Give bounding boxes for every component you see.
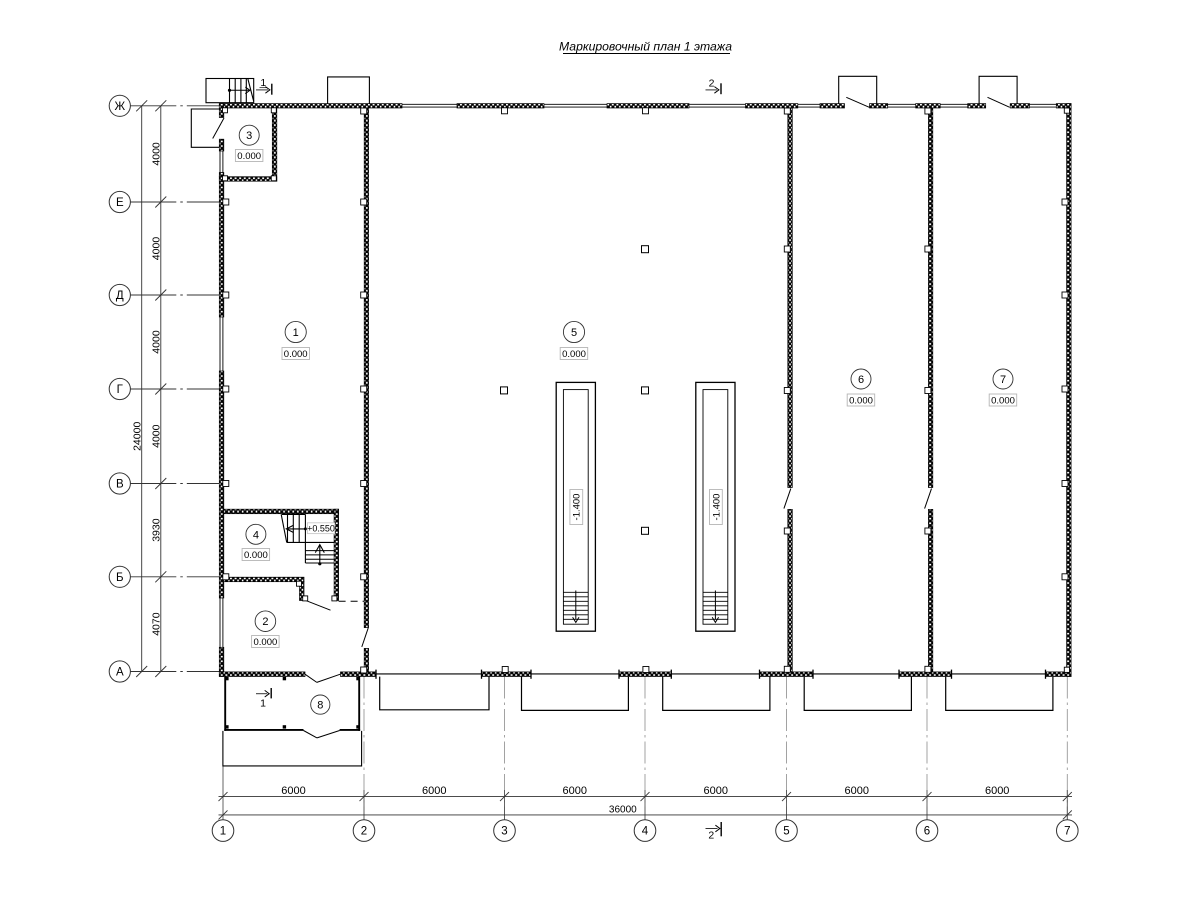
svg-text:Д: Д	[116, 290, 124, 302]
svg-text:1: 1	[220, 826, 226, 838]
svg-text:4000: 4000	[151, 237, 163, 261]
svg-text:Г: Г	[117, 384, 124, 396]
svg-text:6000: 6000	[563, 785, 587, 797]
svg-text:4: 4	[253, 529, 259, 541]
svg-text:36000: 36000	[609, 804, 637, 815]
svg-text:В: В	[116, 479, 124, 491]
svg-text:4070: 4070	[151, 612, 163, 636]
svg-text:4000: 4000	[151, 142, 163, 166]
svg-text:6000: 6000	[845, 785, 869, 797]
svg-text:5: 5	[783, 826, 789, 838]
svg-text:2: 2	[262, 616, 268, 628]
svg-text:А: А	[116, 667, 124, 679]
svg-text:1: 1	[293, 327, 299, 339]
svg-text:0.000: 0.000	[244, 550, 268, 561]
svg-text:7: 7	[1064, 826, 1070, 838]
svg-text:+0.550: +0.550	[307, 523, 335, 533]
svg-text:6000: 6000	[422, 785, 446, 797]
svg-text:2: 2	[708, 830, 714, 842]
svg-text:0.000: 0.000	[562, 349, 586, 360]
svg-text:-1.400: -1.400	[711, 494, 722, 521]
svg-text:3: 3	[246, 130, 252, 142]
svg-text:4000: 4000	[151, 330, 163, 354]
svg-text:4000: 4000	[151, 424, 163, 448]
svg-text:6000: 6000	[985, 785, 1009, 797]
svg-text:0.000: 0.000	[849, 396, 873, 407]
svg-text:6: 6	[858, 374, 864, 386]
svg-text:Е: Е	[116, 197, 124, 209]
svg-text:5: 5	[571, 327, 577, 339]
svg-text:Маркировочный план 1 этажа: Маркировочный план 1 этажа	[559, 40, 732, 54]
svg-text:4: 4	[642, 826, 649, 838]
svg-text:1: 1	[260, 697, 266, 709]
svg-text:Ж: Ж	[114, 101, 125, 113]
svg-text:2: 2	[361, 826, 367, 838]
svg-text:6000: 6000	[281, 785, 305, 797]
svg-text:Б: Б	[116, 572, 124, 584]
svg-text:-1.400: -1.400	[572, 494, 583, 521]
svg-text:2: 2	[709, 78, 715, 90]
svg-text:0.000: 0.000	[991, 396, 1015, 407]
svg-text:6000: 6000	[704, 785, 728, 797]
svg-text:24000: 24000	[131, 422, 143, 451]
svg-text:6: 6	[924, 826, 930, 838]
svg-text:0.000: 0.000	[284, 349, 308, 360]
svg-text:8: 8	[317, 700, 323, 712]
svg-text:3930: 3930	[151, 518, 163, 542]
svg-text:0.000: 0.000	[254, 637, 278, 648]
svg-text:3: 3	[501, 826, 507, 838]
svg-text:0.000: 0.000	[237, 151, 261, 162]
svg-text:7: 7	[1000, 374, 1006, 386]
